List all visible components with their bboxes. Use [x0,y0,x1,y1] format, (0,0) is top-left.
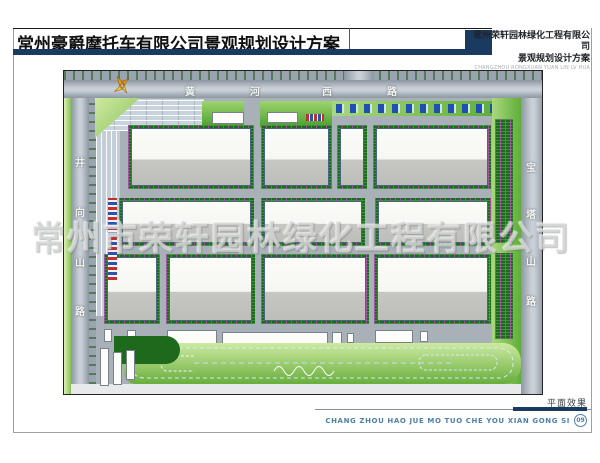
dense-planting-patch [114,336,180,364]
presentation-sheet: 常州豪爵摩托车有限公司景观规划设计方案 常州荣轩园林绿化工程有限公司 景观规划设… [0,0,600,463]
ancillary-building [100,348,109,386]
test-track-lines [124,343,521,384]
building-roof [264,128,329,186]
ancillary-building [126,350,135,380]
parked-cars-gate [306,114,324,121]
parked-cars-column [108,198,117,280]
road-label-char: 塔 [526,206,536,221]
footer-pinyin: CHANG ZHOU HAO JUE MO TUO CHE YOU XIAN G… [325,417,570,425]
factory-building [119,198,254,246]
company-subtitle: 景观规划设计方案 [468,54,590,65]
factory-building [166,254,255,324]
title-underline-bar [13,49,465,55]
gate-house [267,112,298,123]
factory-building [261,125,332,189]
road-label-char: 路 [526,293,536,308]
building-roof [131,128,251,186]
road-label-char: 向 [75,204,85,219]
road-label-char: 黄 [185,83,195,98]
gate-house [212,112,244,124]
parked-vehicles-row [336,104,492,113]
ancillary-building [104,329,112,342]
building-roof [169,257,252,321]
road-label-char: 宝 [526,159,536,174]
west-verge-inner [89,98,96,384]
east-hedge-block [495,119,513,243]
factory-building [128,125,254,189]
test-track-greenbelt [124,343,521,384]
company-info: 常州荣轩园林绿化工程有限公司 景观规划设计方案 CHANGZHOU RONGXU… [468,31,590,71]
factory-building [375,198,491,246]
header-rule [13,28,492,29]
east-road [521,80,543,395]
building-roof [376,128,488,186]
road-label-char: 河 [250,83,260,98]
factory-building [261,198,365,246]
road-label-char: 路 [387,83,397,98]
factory-building [373,125,491,189]
road-label-char: 山 [526,253,536,268]
ancillary-building [420,331,428,342]
west-verge-outer [64,80,71,395]
north-verge [64,71,543,80]
site-plan-drawing: 黄 河 西 路 井 向 山 路 宝 塔 山 路 [63,70,543,395]
company-name: 常州荣轩园林绿化工程有限公司 [468,31,590,54]
north-stub-road [344,71,374,80]
north-arrow-icon [111,74,133,96]
north-road [64,80,543,98]
building-roof [340,128,364,186]
road-label-char: 西 [322,83,332,98]
page-number-badge: 09 [574,414,587,427]
footer-title-row: CHANG ZHOU HAO JUE MO TUO CHE YOU XIAN G… [325,414,587,427]
road-label-char: 路 [75,303,85,318]
ancillary-building [113,352,122,385]
building-roof [122,201,251,243]
building-roof [378,201,488,243]
building-roof [264,257,366,321]
footer-rule-accent [513,407,587,411]
ancillary-building [347,333,354,343]
factory-building [261,254,369,324]
building-roof [377,257,488,321]
building-roof [264,201,362,243]
east-hedge-block [495,253,513,339]
factory-building [374,254,491,324]
ancillary-building [375,330,413,343]
road-label-char: 井 [75,154,85,169]
west-road [71,80,89,395]
road-label-char: 山 [75,254,85,269]
factory-building [337,125,367,189]
south-boundary-road [71,384,521,395]
